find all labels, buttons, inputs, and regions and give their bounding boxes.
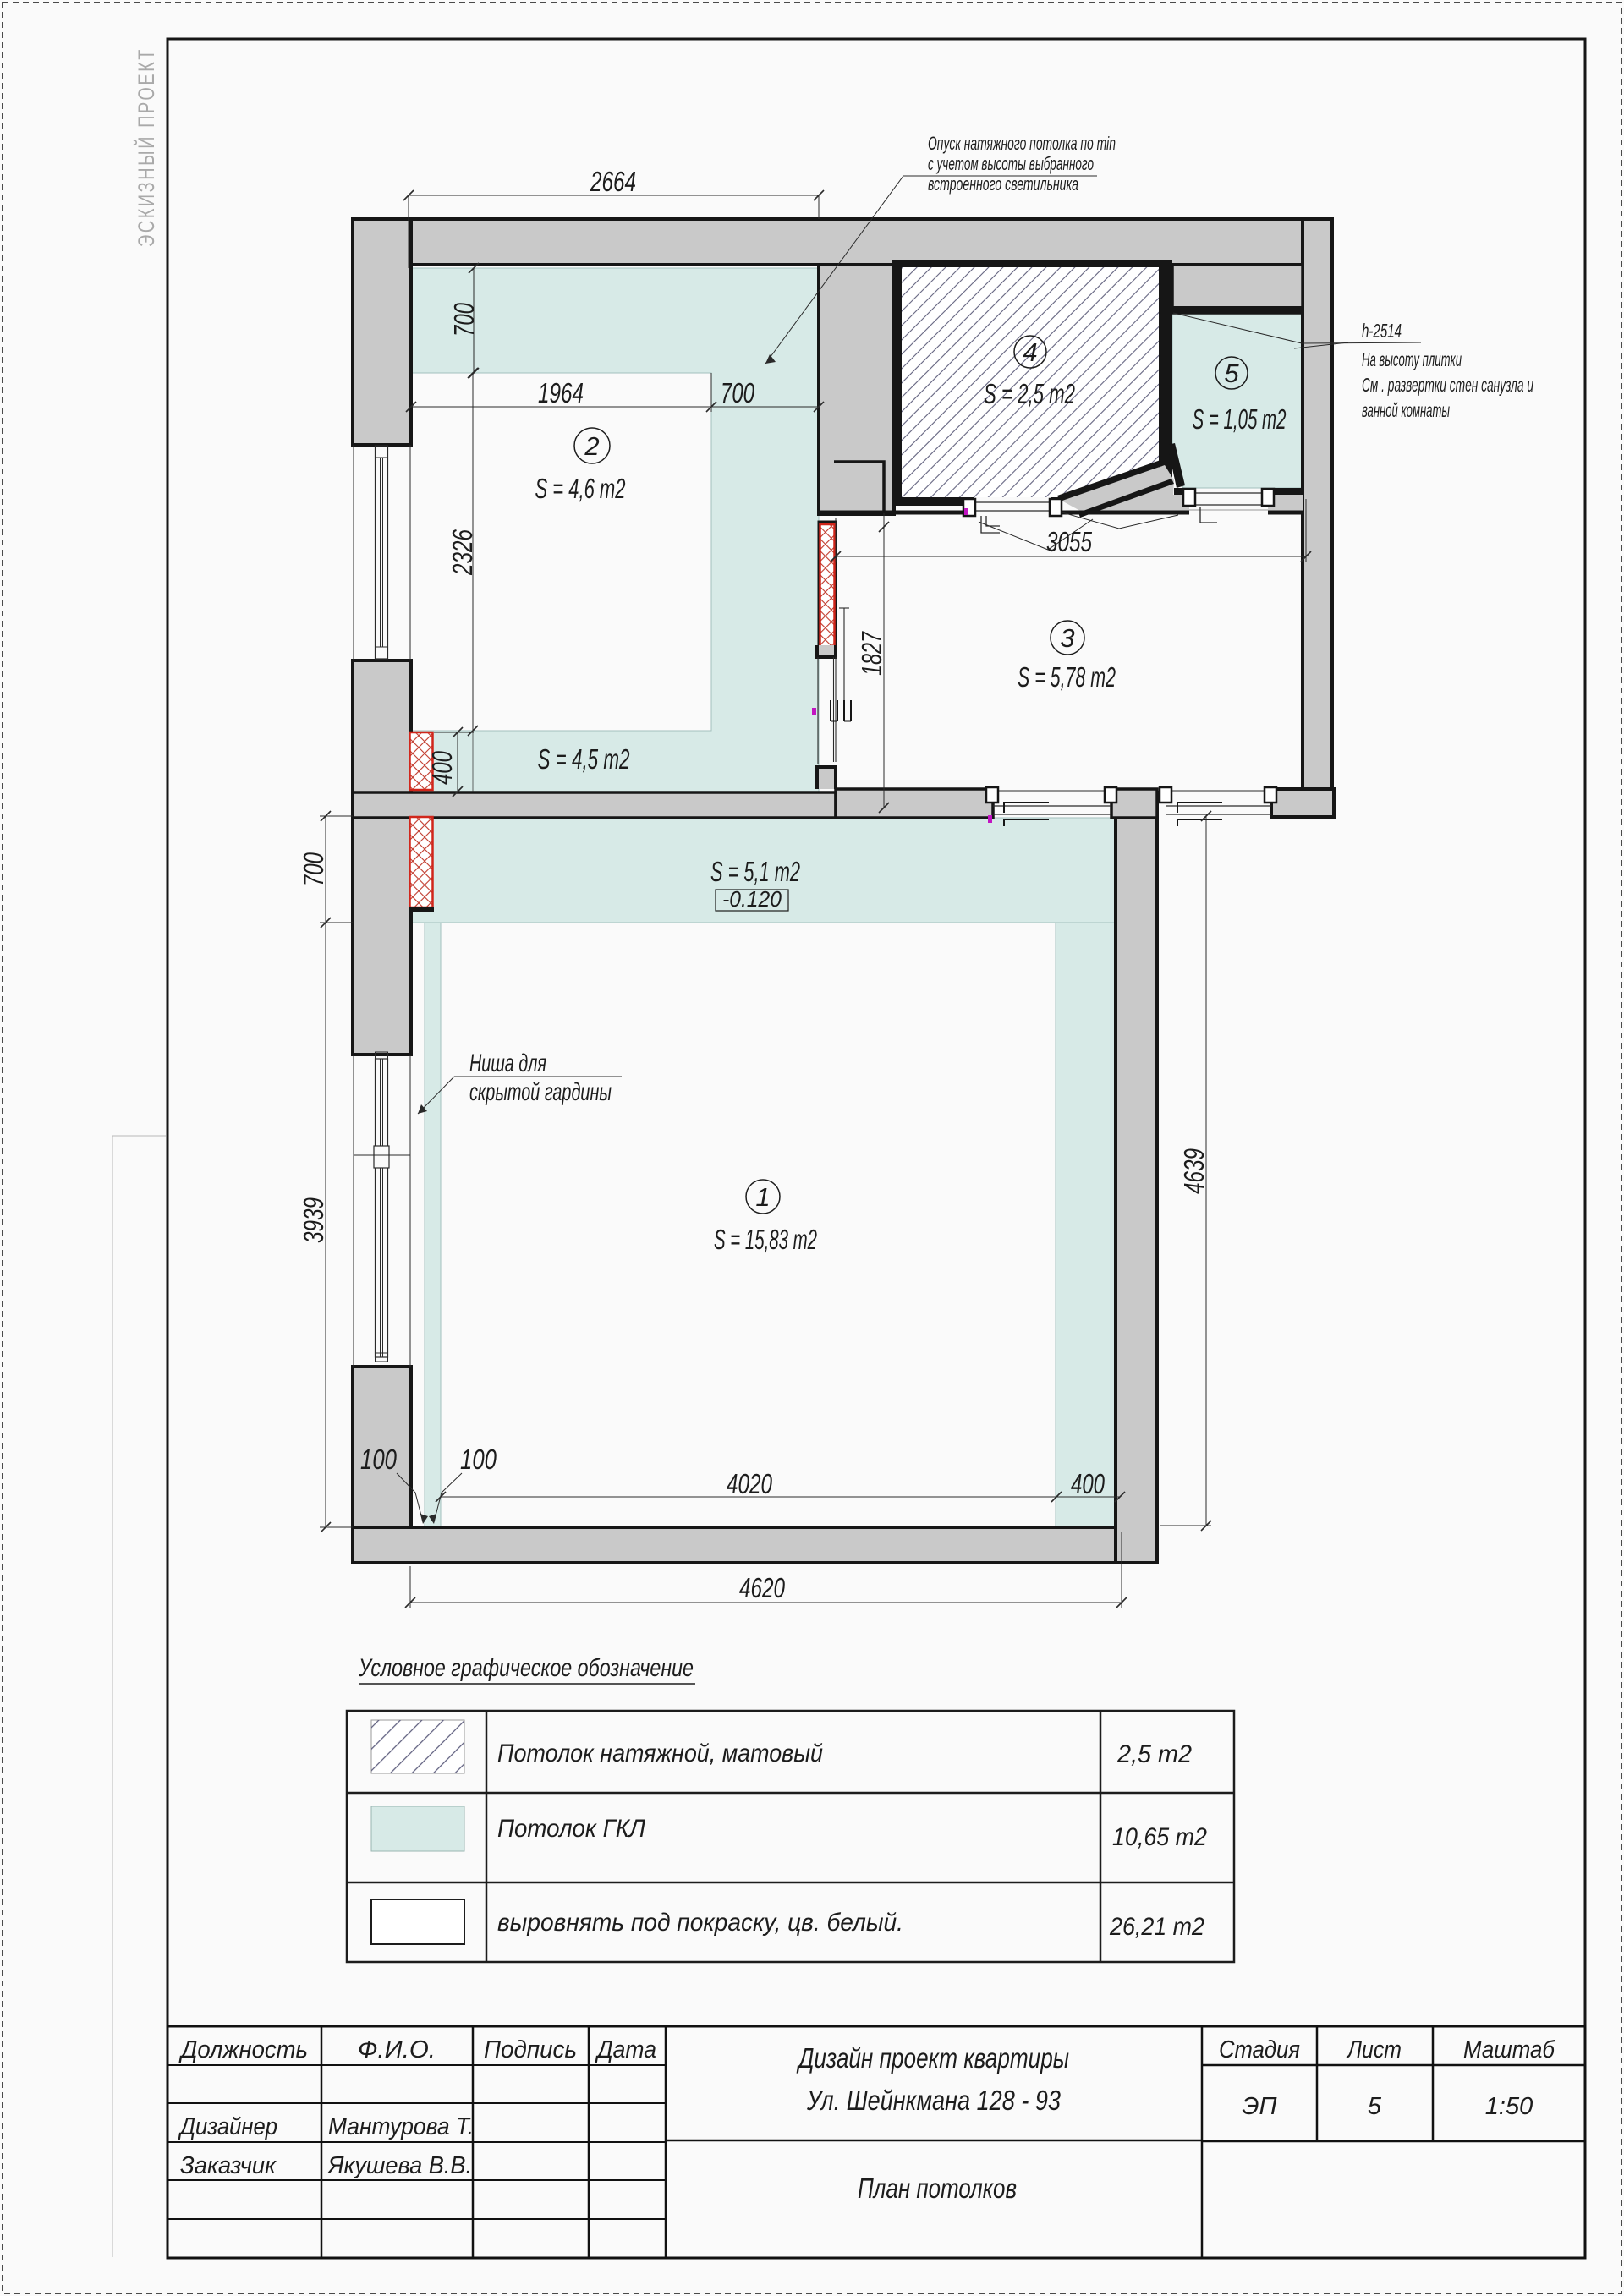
svg-text:S = 15,83 m2: S = 15,83 m2 xyxy=(714,1224,817,1255)
svg-text:2326: 2326 xyxy=(447,529,478,576)
svg-text:Маштаб: Маштаб xyxy=(1463,2036,1555,2063)
svg-text:с учетом высоты выбранного: с учетом высоты выбранного xyxy=(928,153,1094,174)
svg-text:S = 4,5 m2: S = 4,5 m2 xyxy=(538,743,630,775)
svg-text:S = 4,6 m2: S = 4,6 m2 xyxy=(535,473,626,504)
svg-text:-0.120: -0.120 xyxy=(722,886,782,912)
svg-text:Потолок натяжной, матовый: Потолок натяжной, матовый xyxy=(497,1740,823,1767)
svg-text:3: 3 xyxy=(1060,623,1074,653)
svg-text:S = 2,5 m2: S = 2,5 m2 xyxy=(984,378,1075,409)
svg-text:10,65 m2: 10,65 m2 xyxy=(1112,1823,1207,1851)
svg-text:2,5 m2: 2,5 m2 xyxy=(1116,1740,1192,1768)
svg-text:1: 1 xyxy=(755,1182,770,1212)
svg-text:Стадия: Стадия xyxy=(1219,2036,1300,2063)
svg-text:700: 700 xyxy=(298,852,329,886)
svg-text:Дизайнер: Дизайнер xyxy=(178,2113,277,2140)
svg-text:1964: 1964 xyxy=(538,377,584,408)
svg-text:Заказчик: Заказчик xyxy=(180,2152,277,2179)
svg-text:Подпись: Подпись xyxy=(484,2036,577,2063)
svg-text:700: 700 xyxy=(721,377,754,408)
svg-text:2664: 2664 xyxy=(590,166,636,197)
svg-text:3939: 3939 xyxy=(298,1197,329,1243)
svg-text:Ул. Шейнкмана 128 - 93: Ул. Шейнкмана 128 - 93 xyxy=(806,2085,1061,2116)
svg-text:Ф.И.О.: Ф.И.О. xyxy=(358,2036,436,2063)
svg-text:План потолков: План потолков xyxy=(858,2173,1017,2204)
svg-text:встроенного светильника: встроенного светильника xyxy=(928,173,1078,195)
svg-text:Ниша для: Ниша для xyxy=(469,1049,546,1077)
svg-text:100: 100 xyxy=(360,1444,398,1475)
svg-text:5: 5 xyxy=(1224,359,1239,388)
svg-text:Дата: Дата xyxy=(595,2036,656,2063)
svg-text:400: 400 xyxy=(426,751,458,785)
svg-text:5: 5 xyxy=(1368,2093,1382,2120)
svg-text:1827: 1827 xyxy=(856,631,887,676)
svg-text:4620: 4620 xyxy=(739,1572,785,1603)
svg-text:На высоту плитки: На высоту плитки xyxy=(1362,348,1462,370)
svg-text:Опуск натяжного потолка по mi: Опуск натяжного потолка по min xyxy=(928,133,1116,154)
svg-text:4020: 4020 xyxy=(727,1468,772,1499)
svg-text:3055: 3055 xyxy=(1046,526,1092,557)
svg-text:выровнять под покраску, цв. бе: выровнять под покраску, цв. белый. xyxy=(497,1909,903,1937)
svg-text:S = 5,1 m2: S = 5,1 m2 xyxy=(710,856,800,887)
svg-text:1:50: 1:50 xyxy=(1485,2093,1533,2120)
svg-text:Мантурова Т.: Мантурова Т. xyxy=(328,2113,474,2140)
svg-text:4: 4 xyxy=(1023,337,1037,367)
svg-text:2: 2 xyxy=(584,431,599,461)
svg-text:400: 400 xyxy=(1071,1468,1105,1499)
svg-text:100: 100 xyxy=(460,1444,497,1475)
svg-text:Потолок ГКЛ: Потолок ГКЛ xyxy=(497,1815,645,1843)
svg-text:скрытой гардины: скрытой гардины xyxy=(469,1078,612,1106)
svg-text:ванной комнаты: ванной комнаты xyxy=(1362,399,1450,421)
svg-text:S = 1,05 m2: S = 1,05 m2 xyxy=(1193,403,1287,435)
svg-text:700: 700 xyxy=(448,303,480,337)
svg-text:Условное графическое обозначен: Условное графическое обозначение xyxy=(358,1654,694,1682)
svg-text:Лист: Лист xyxy=(1346,2036,1402,2063)
svg-text:4639: 4639 xyxy=(1178,1148,1210,1194)
svg-text:Должность: Должность xyxy=(178,2036,308,2063)
svg-text:См . развертки стен санузла и: См . развертки стен санузла и xyxy=(1362,374,1533,396)
svg-text:26,21 m2: 26,21 m2 xyxy=(1109,1913,1204,1941)
svg-text:h-2514: h-2514 xyxy=(1362,320,1402,342)
svg-text:Дизайн проект квартиры: Дизайн проект квартиры xyxy=(796,2042,1069,2074)
svg-text:ЭП: ЭП xyxy=(1242,2093,1277,2120)
svg-text:S = 5,78 m2: S = 5,78 m2 xyxy=(1018,661,1116,693)
svg-text:Якушева В.В.: Якушева В.В. xyxy=(326,2152,472,2179)
svg-text:ЭСКИЗНЫЙ ПРОЕКТ: ЭСКИЗНЫЙ ПРОЕКТ xyxy=(133,47,159,247)
